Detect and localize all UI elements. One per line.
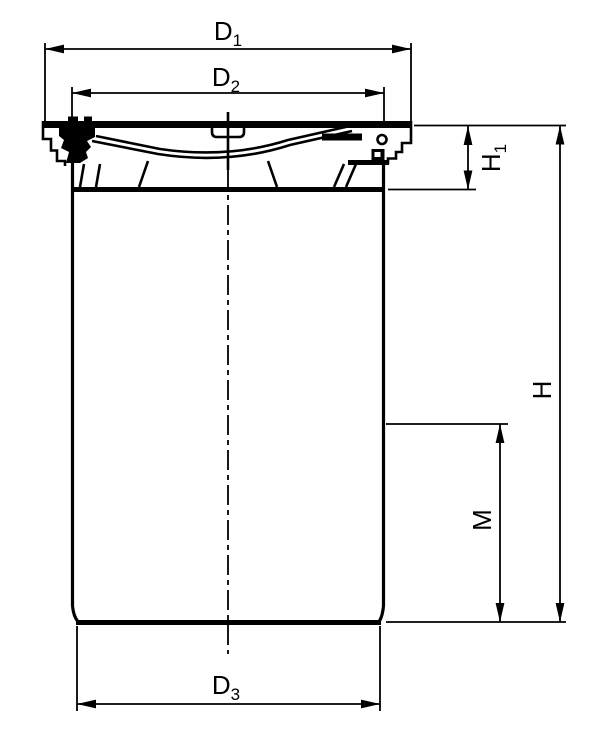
lid-top-detail: [68, 117, 78, 122]
lid-oring-detail: [378, 135, 387, 144]
technical-drawing-page: D1 D2 D3 H1 H M: [0, 0, 603, 736]
dimension-label-h: H: [527, 381, 557, 400]
lid-rib-line: [346, 164, 356, 187]
dimension-m: M: [386, 424, 508, 622]
lid-top-detail: [84, 117, 92, 122]
lid-rim-bar-right: [348, 160, 389, 165]
dimension-label-h1: H1: [476, 144, 510, 172]
lid-top-plate: [43, 121, 411, 128]
lid-rib-line: [80, 164, 84, 187]
lid-rib-line: [96, 164, 100, 187]
arrowhead-right: [361, 700, 380, 709]
body-chamfer-left: [73, 606, 78, 621]
lid-rib-line: [268, 161, 277, 187]
technical-drawing-canvas: D1 D2 D3 H1 H M: [0, 0, 603, 736]
arrowhead-left: [45, 45, 64, 54]
arrowhead-right: [392, 45, 411, 54]
dimension-h1: H1: [388, 126, 510, 190]
lid-rib-line: [334, 164, 344, 187]
arrowhead-down: [556, 603, 565, 622]
lid-skirt-bottom-edge: [71, 187, 385, 192]
arrowhead-up: [496, 424, 505, 443]
arrowhead-up: [464, 126, 473, 145]
arrowhead-down: [496, 603, 505, 622]
dimension-h: H: [386, 126, 566, 623]
lid-rib-line: [139, 161, 148, 187]
lid-seal-block-notch: [375, 152, 381, 157]
arrowhead-left: [72, 89, 91, 98]
arrowhead-down: [464, 171, 473, 190]
arrowhead-right: [365, 89, 384, 98]
dimension-label-m: M: [467, 509, 497, 531]
dimension-label-d3: D3: [212, 670, 240, 704]
dimension-label-d1: D1: [214, 16, 242, 50]
lid-seal-section-left: [59, 128, 95, 163]
dimension-label-d2: D2: [212, 62, 240, 96]
arrowhead-left: [77, 700, 96, 709]
body-bottom-edge: [76, 620, 381, 625]
arrowhead-up: [556, 126, 565, 145]
body-chamfer-right: [380, 606, 384, 621]
